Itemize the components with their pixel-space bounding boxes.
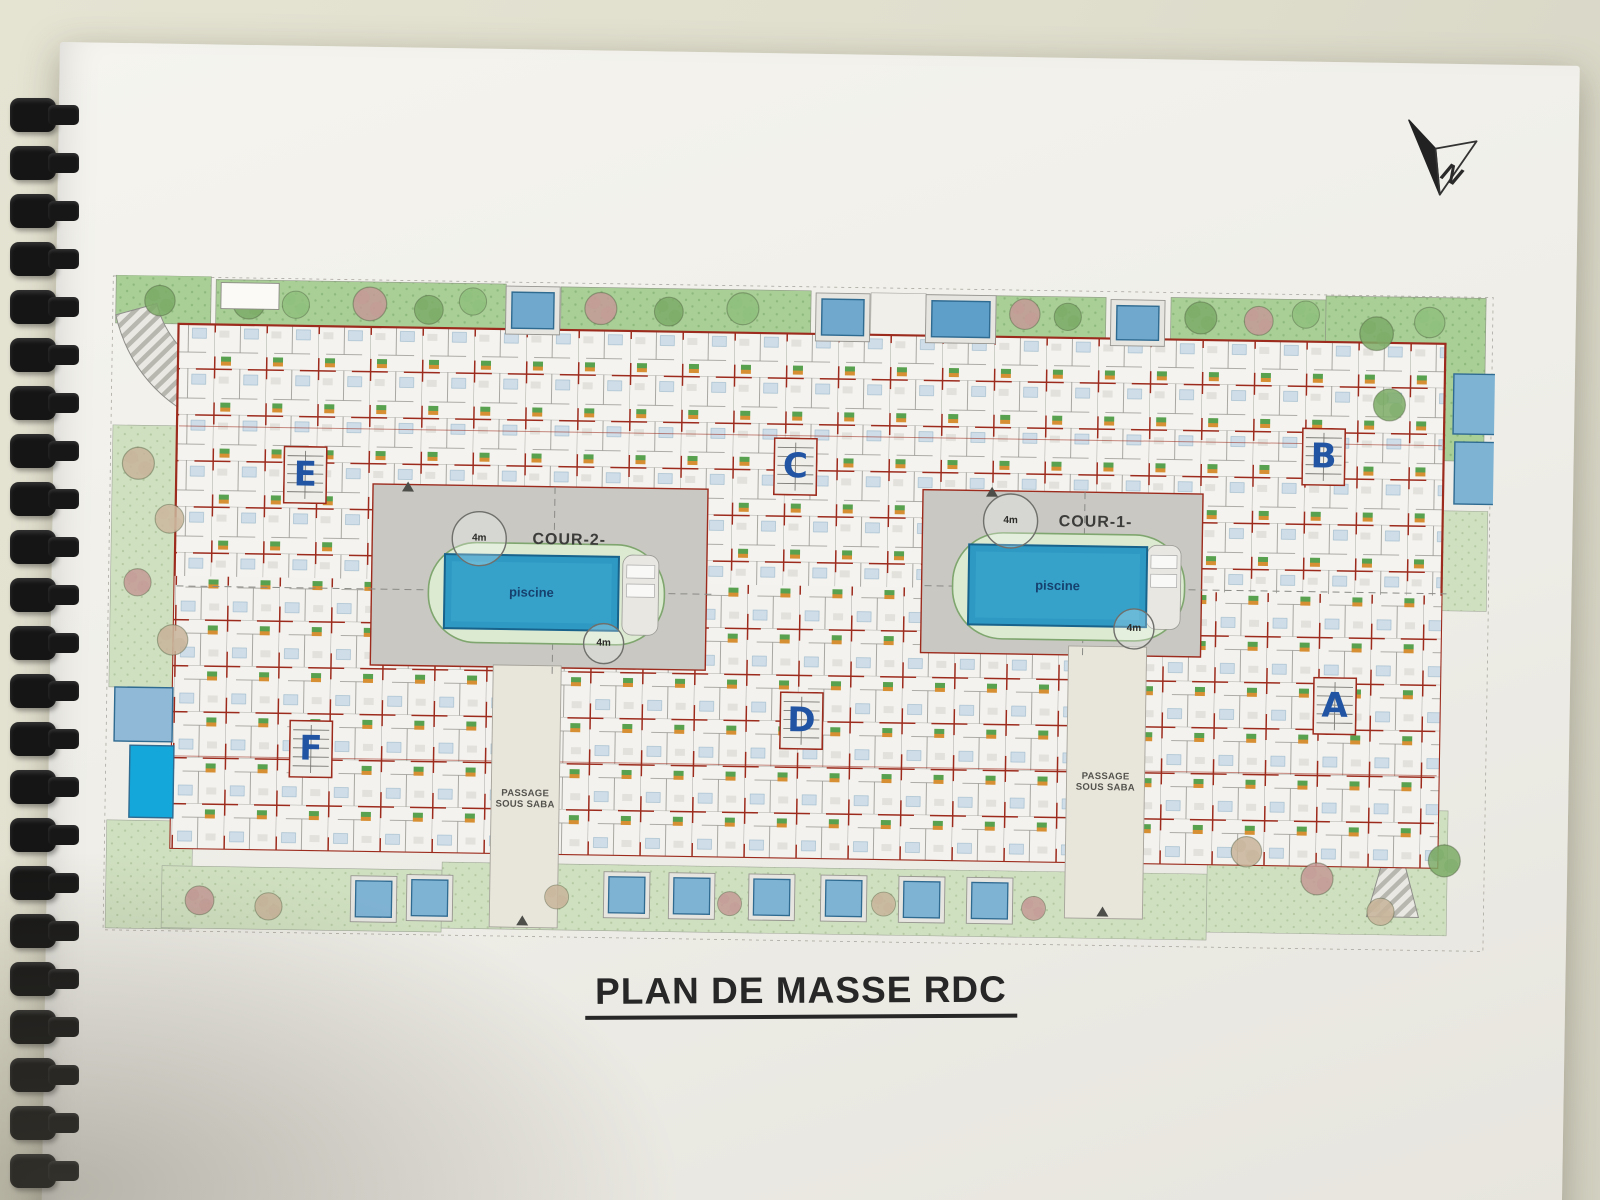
binding-tooth xyxy=(10,1154,56,1188)
page-title: PLAN DE MASSE RDC xyxy=(585,969,1017,1020)
block-label-f: F xyxy=(299,728,323,769)
binding-tooth xyxy=(10,914,56,948)
dimension-label-4m-cour2-top: 4m xyxy=(472,533,487,545)
binding-tooth xyxy=(10,866,56,900)
binding-tooth xyxy=(10,530,56,564)
binding-tooth xyxy=(10,146,56,180)
binding-tooth xyxy=(10,98,56,132)
binding-tooth xyxy=(10,626,56,660)
north-arrow-icon xyxy=(1379,118,1481,230)
site-plan-drawing xyxy=(101,275,1496,957)
courtyard-label-cour1: COUR-1- xyxy=(1059,512,1133,532)
pool-label-right: piscine xyxy=(1035,578,1080,594)
binding-tooth xyxy=(10,386,56,420)
dimension-label-4m-cour2-bottom: 4m xyxy=(596,638,611,650)
binding-tooth xyxy=(10,1106,56,1140)
binding-tooth xyxy=(10,482,56,516)
block-label-b: B xyxy=(1310,436,1337,477)
north-arrow: N xyxy=(1379,118,1481,230)
passage-label-left: PASSAGE SOUS SABA xyxy=(495,788,555,812)
binding-tooth xyxy=(10,434,56,468)
block-label-e: E xyxy=(293,454,317,495)
binding-tooth xyxy=(10,818,56,852)
site-plan: E C B F D A COUR-2- COUR-1- piscine pisc… xyxy=(101,275,1496,957)
block-label-c: C xyxy=(783,446,809,487)
binding-tooth xyxy=(10,338,56,372)
courtyard-label-cour2: COUR-2- xyxy=(532,530,606,550)
document-page: E C B F D A COUR-2- COUR-1- piscine pisc… xyxy=(40,42,1579,1200)
spiral-binding xyxy=(0,0,90,1200)
pool-label-left: piscine xyxy=(509,584,554,600)
guard-box xyxy=(221,283,279,310)
binding-tooth xyxy=(10,722,56,756)
binding-tooth xyxy=(10,194,56,228)
binding-tooth xyxy=(10,578,56,612)
block-label-d: D xyxy=(787,700,816,741)
binding-tooth xyxy=(10,962,56,996)
binding-tooth xyxy=(10,290,56,324)
dimension-label-4m-cour1-top: 4m xyxy=(1003,515,1018,527)
photo-background: E C B F D A COUR-2- COUR-1- piscine pisc… xyxy=(0,0,1600,1200)
binding-tooth xyxy=(10,1010,56,1044)
block-label-a: A xyxy=(1321,686,1348,727)
binding-tooth xyxy=(10,242,56,276)
binding-tooth xyxy=(10,1058,56,1092)
binding-tooth xyxy=(10,770,56,804)
passage-label-right: PASSAGE SOUS SABA xyxy=(1076,771,1136,795)
dimension-label-4m-cour1-bottom: 4m xyxy=(1127,623,1142,635)
binding-tooth xyxy=(10,674,56,708)
